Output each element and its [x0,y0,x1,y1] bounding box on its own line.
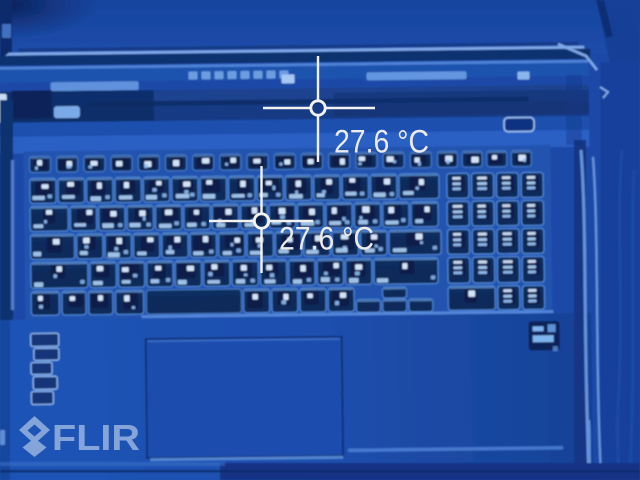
svg-text:27.6 °C: 27.6 °C [279,221,374,257]
svg-text:FLIR: FLIR [52,417,140,458]
svg-text:27.6 °C: 27.6 °C [334,124,429,160]
